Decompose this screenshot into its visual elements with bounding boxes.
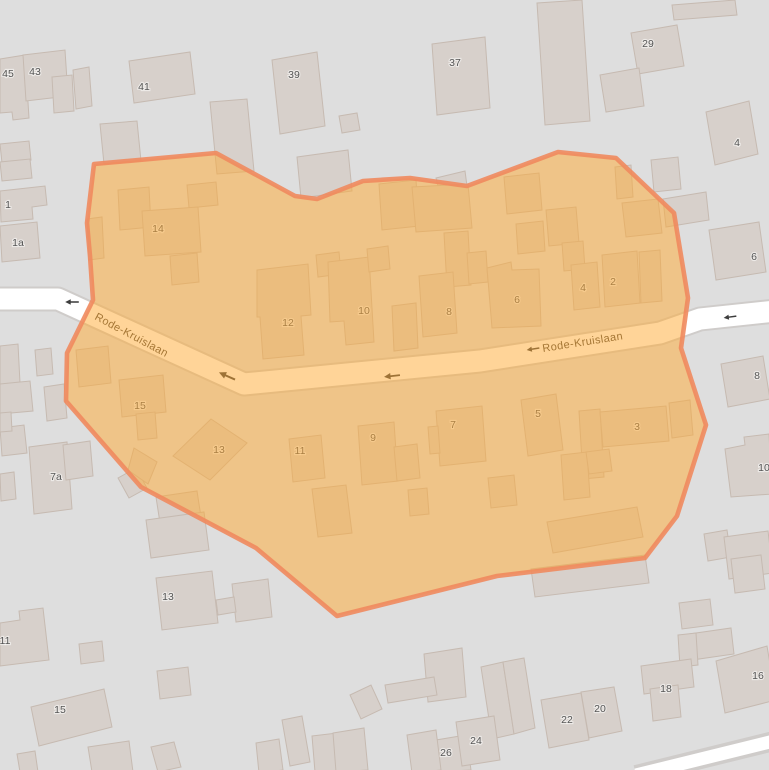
svg-text:37: 37 [449, 57, 461, 69]
svg-text:15: 15 [54, 704, 66, 716]
svg-text:11: 11 [0, 635, 11, 647]
svg-text:7a: 7a [50, 471, 62, 483]
svg-text:1a: 1a [12, 237, 24, 249]
svg-text:13: 13 [162, 591, 174, 603]
svg-text:4: 4 [734, 137, 740, 149]
svg-text:41: 41 [138, 81, 150, 93]
svg-text:39: 39 [288, 69, 300, 81]
svg-text:43: 43 [29, 66, 41, 78]
svg-text:16: 16 [752, 670, 764, 682]
svg-text:24: 24 [470, 735, 482, 747]
svg-text:8: 8 [754, 370, 760, 382]
svg-text:6: 6 [751, 251, 757, 263]
svg-text:45: 45 [2, 68, 14, 80]
svg-text:18: 18 [660, 683, 672, 695]
svg-text:1: 1 [5, 199, 11, 211]
svg-text:29: 29 [642, 38, 654, 50]
svg-text:26: 26 [440, 747, 452, 759]
svg-text:10: 10 [758, 462, 769, 474]
svg-text:20: 20 [594, 703, 606, 715]
svg-text:22: 22 [561, 714, 573, 726]
